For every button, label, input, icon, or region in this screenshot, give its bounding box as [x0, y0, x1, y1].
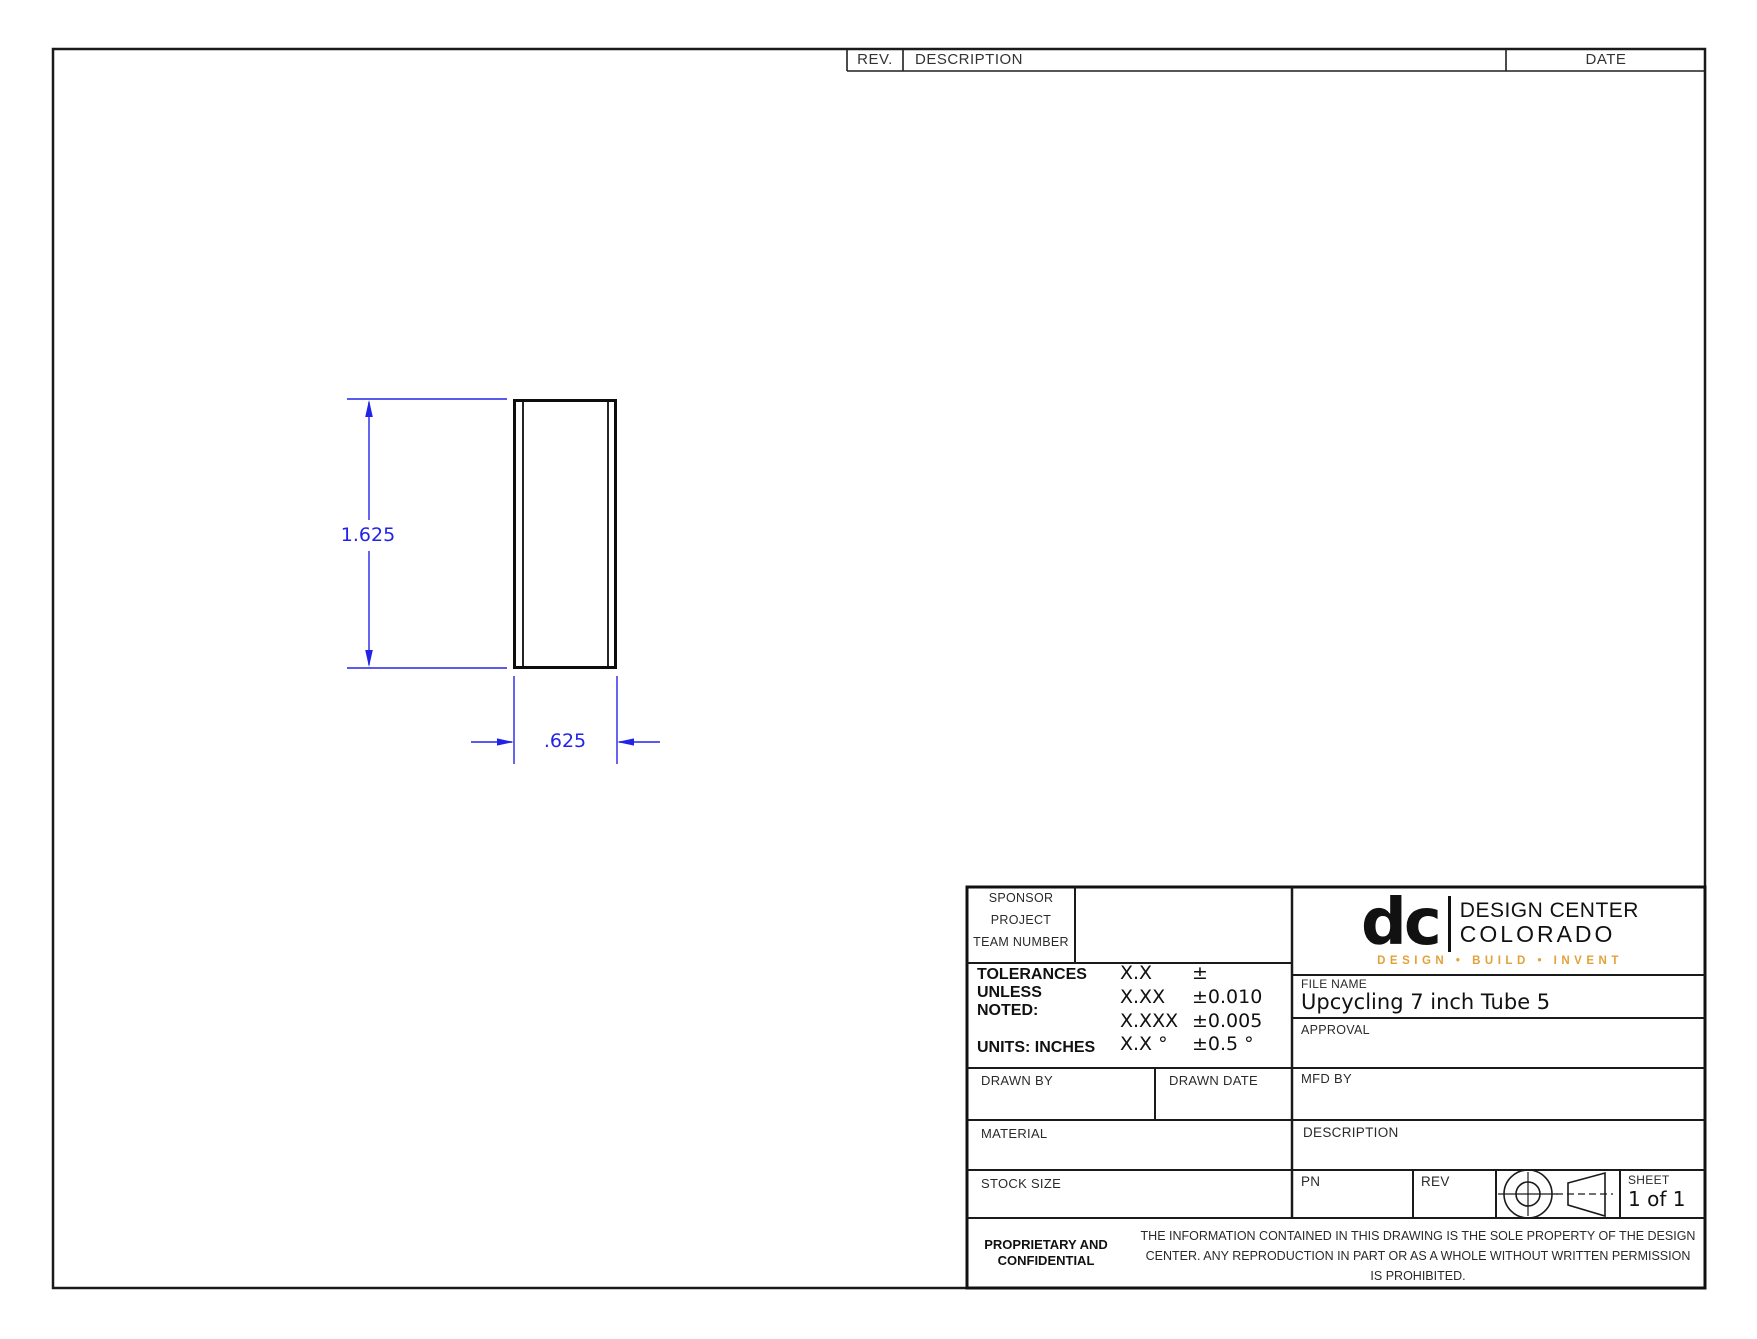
logo-name-line1: DESIGN CENTER: [1460, 900, 1639, 922]
drawn-date-label: DRAWN DATE: [1169, 1073, 1258, 1088]
project-label: PROJECT: [967, 913, 1075, 927]
width-dimension-text: .625: [520, 730, 610, 752]
sheet-linework: [0, 0, 1757, 1339]
pn-label: PN: [1301, 1174, 1320, 1189]
arrow-up-icon: [365, 400, 373, 417]
proprietary-line2: CONFIDENTIAL: [998, 1253, 1095, 1269]
tolerance-spec-4: X.X °: [1120, 1033, 1168, 1055]
third-angle-projection-icon: [1498, 1170, 1613, 1218]
proprietary-line1: PROPRIETARY AND: [984, 1237, 1108, 1253]
date-column-header: DATE: [1546, 51, 1666, 68]
tolerance-value-1: ±: [1192, 962, 1208, 984]
tolerances-heading-line3: NOTED:: [977, 1002, 1038, 1020]
description-column-header: DESCRIPTION: [915, 51, 1023, 68]
units-label: UNITS: INCHES: [977, 1039, 1095, 1057]
proprietary-notice: PROPRIETARY AND CONFIDENTIAL: [970, 1222, 1122, 1284]
team-number-label: TEAM NUMBER: [967, 935, 1075, 949]
tolerances-heading-line2: UNLESS: [977, 984, 1042, 1002]
logo-tagline: DESIGN • BUILD • INVENT: [1377, 955, 1623, 967]
drawing-sheet: REV. DESCRIPTION DATE 1.625 .625 SPONSOR…: [0, 0, 1757, 1339]
arrow-left-icon: [617, 738, 634, 745]
legal-text: THE INFORMATION CONTAINED IN THIS DRAWIN…: [1138, 1226, 1698, 1286]
arrow-down-icon: [365, 650, 373, 667]
file-name-label: FILE NAME: [1301, 977, 1367, 991]
approval-label: APPROVAL: [1301, 1023, 1370, 1037]
rev-column-header: REV.: [847, 51, 903, 68]
sheet-border: [53, 49, 1705, 1288]
tolerances-heading-line1: TOLERANCES: [977, 966, 1087, 984]
sheet-value: 1 of 1: [1628, 1187, 1685, 1211]
tolerance-value-3: ±0.005: [1192, 1010, 1262, 1032]
rev-label: REV: [1421, 1174, 1450, 1189]
sponsor-label: SPONSOR: [967, 891, 1075, 905]
tolerance-value-2: ±0.010: [1192, 986, 1262, 1008]
material-label: MATERIAL: [981, 1126, 1047, 1141]
tolerance-spec-3: X.XXX: [1120, 1010, 1178, 1032]
description-label: DESCRIPTION: [1303, 1125, 1399, 1140]
file-name-value: Upcycling 7 inch Tube 5: [1301, 990, 1550, 1014]
height-dimension-text: 1.625: [323, 524, 413, 546]
arrow-right-icon: [497, 738, 514, 745]
logo-divider: [1448, 896, 1451, 952]
logo-name-line2: COLORADO: [1460, 922, 1639, 946]
drawn-by-label: DRAWN BY: [981, 1073, 1053, 1088]
sheet-label: SHEET: [1628, 1173, 1670, 1187]
design-center-logo: dc DESIGN CENTER COLORADO DESIGN • BUILD…: [1298, 889, 1702, 973]
logo-monogram: dc: [1361, 899, 1439, 949]
tolerance-value-4: ±0.5 °: [1192, 1033, 1254, 1055]
mfd-by-label: MFD BY: [1301, 1071, 1352, 1086]
tolerance-spec-1: X.X: [1120, 962, 1152, 984]
stock-size-label: STOCK SIZE: [981, 1176, 1061, 1191]
part-outline: [515, 401, 616, 668]
tolerance-spec-2: X.XX: [1120, 986, 1165, 1008]
